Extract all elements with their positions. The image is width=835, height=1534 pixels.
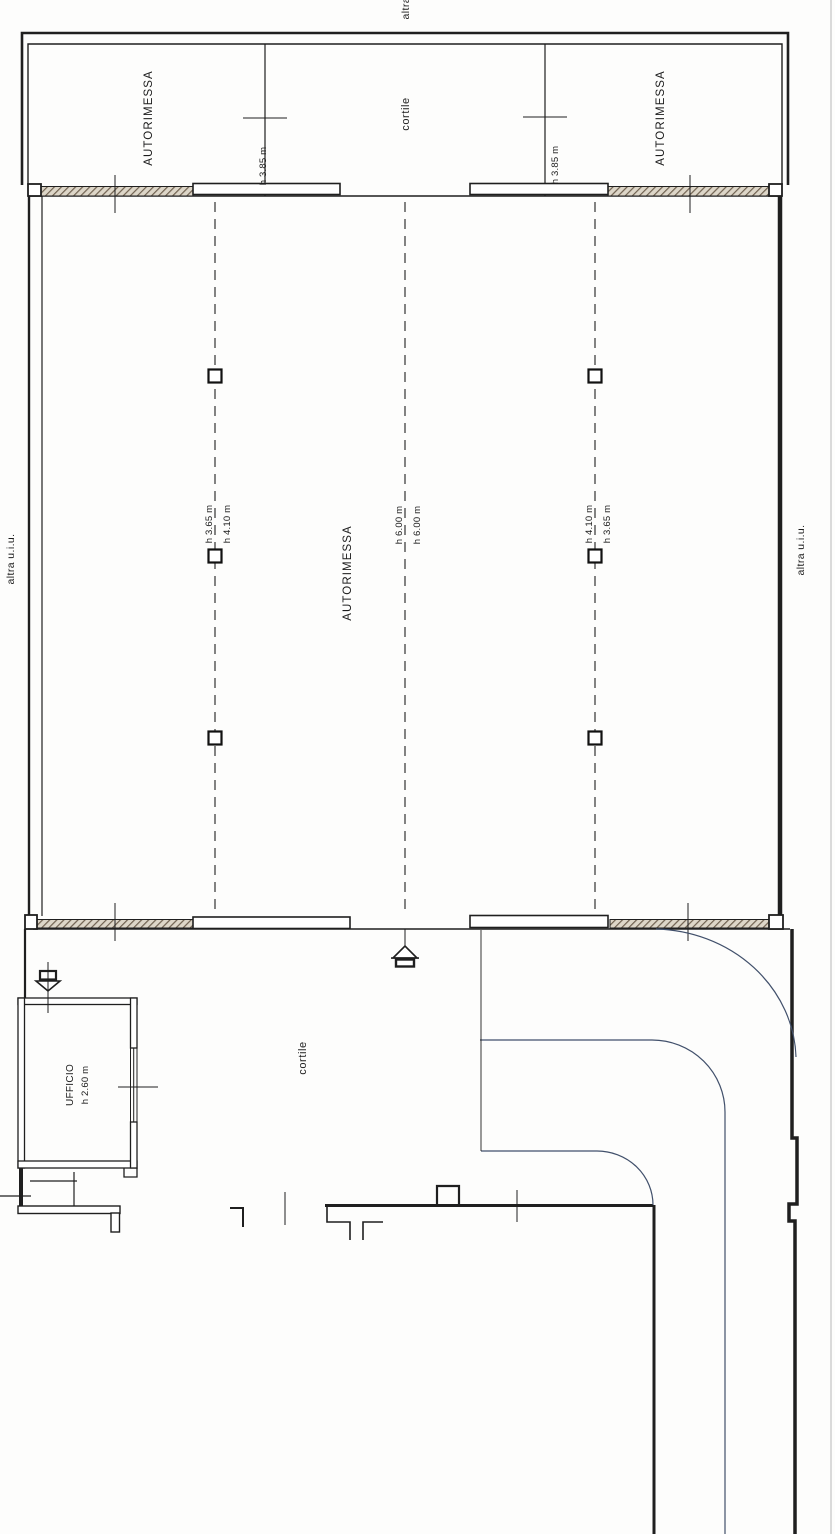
office-wall-top [18,998,137,1005]
ramp-edge-inner [481,1151,653,1205]
room-label-garage-top-left: AUTORIMESSA [143,70,155,166]
height-label-left-axis-a: h 3.65 m [204,505,215,544]
door-leaf-right-top [470,184,608,195]
lower-wall-stub-down [111,1213,120,1232]
gate-swing-arc [656,929,796,1057]
pillar [589,550,602,563]
wall-corner-piece [230,1208,243,1227]
arrow-base-box [396,960,414,967]
pillar [209,732,222,745]
adjacent-unit-label-top: altra u.i.u. [400,0,412,19]
garage-door-hatched-left-top [41,187,193,197]
lower-wall-left-segment [18,1206,120,1214]
lower-wall-step-b [363,1222,383,1240]
plan-labels: altra u.i.u. AUTORIMESSA cortile AUTORIM… [5,0,807,1106]
adjacent-unit-label-right: altra u.i.u. [795,525,807,576]
room-label-courtyard-top: cortile [400,97,412,131]
room-label-courtyard-bottom: cortile [297,1041,309,1075]
lower-middle-walls [230,1186,654,1534]
center-axis-arrow [391,929,419,967]
floor-plan-drawing: altra u.i.u. AUTORIMESSA cortile AUTORIM… [0,0,835,1534]
height-label-center-a: h 6.00 m [394,506,405,545]
right-wall-lower [789,929,797,1534]
office-window [131,1048,138,1122]
north-arrow-icon [393,946,417,958]
office-corner-step [124,1168,137,1177]
pillar [589,370,602,383]
height-label-left-axis-b: h 4.10 m [222,505,233,544]
room-label-garage-top-right: AUTORIMESSA [655,70,667,166]
pillar [209,550,222,563]
height-label-right-axis-b: h 3.65 m [602,505,613,544]
adjacent-unit-label-left: altra u.i.u. [5,534,17,585]
room-label-garage-main: AUTORIMESSA [342,525,354,621]
garage-door-hatched-left-bottom [33,920,193,929]
door-leaf-left-bottom [193,917,350,929]
floor-plan-page: altra u.i.u. AUTORIMESSA cortile AUTORIM… [0,0,835,1534]
lower-wall-step-a [327,1207,350,1240]
height-label-center-b: h 6.00 m [412,506,423,545]
right-boundary [789,929,797,1534]
height-label-right-axis-a: h 4.10 m [584,505,595,544]
office-wall-left [18,998,25,1168]
office-wall-bottom [18,1161,137,1168]
office-room [18,929,158,1177]
room-label-office: UFFICIO [65,1064,76,1106]
garage-door-hatched-right-top [608,187,769,197]
height-label-top-left: h 3.85 m [258,147,269,186]
office-wall-right-lower [131,1122,138,1168]
column-axes [215,202,595,915]
wall-stub-top-left [28,184,41,196]
door-leaf-right-bottom [470,916,608,928]
wall-stub-bottom-left [25,915,37,929]
office-wall-right-upper [131,998,138,1048]
shared-bottom-wall [25,903,790,941]
height-label-office: h 2.60 m [80,1066,91,1105]
driveway-curves [480,929,796,1534]
wall-notch-up [437,1186,459,1204]
pillar [589,732,602,745]
ramp-edge-outer [480,1040,725,1534]
pillar [209,370,222,383]
wall-stub-bottom-right [769,915,783,929]
wall-stub-top-right [769,184,782,196]
garage-door-hatched-right-bottom [610,920,770,929]
height-label-top-right: h 3.85 m [550,146,561,185]
lower-left-walls [0,1168,120,1232]
